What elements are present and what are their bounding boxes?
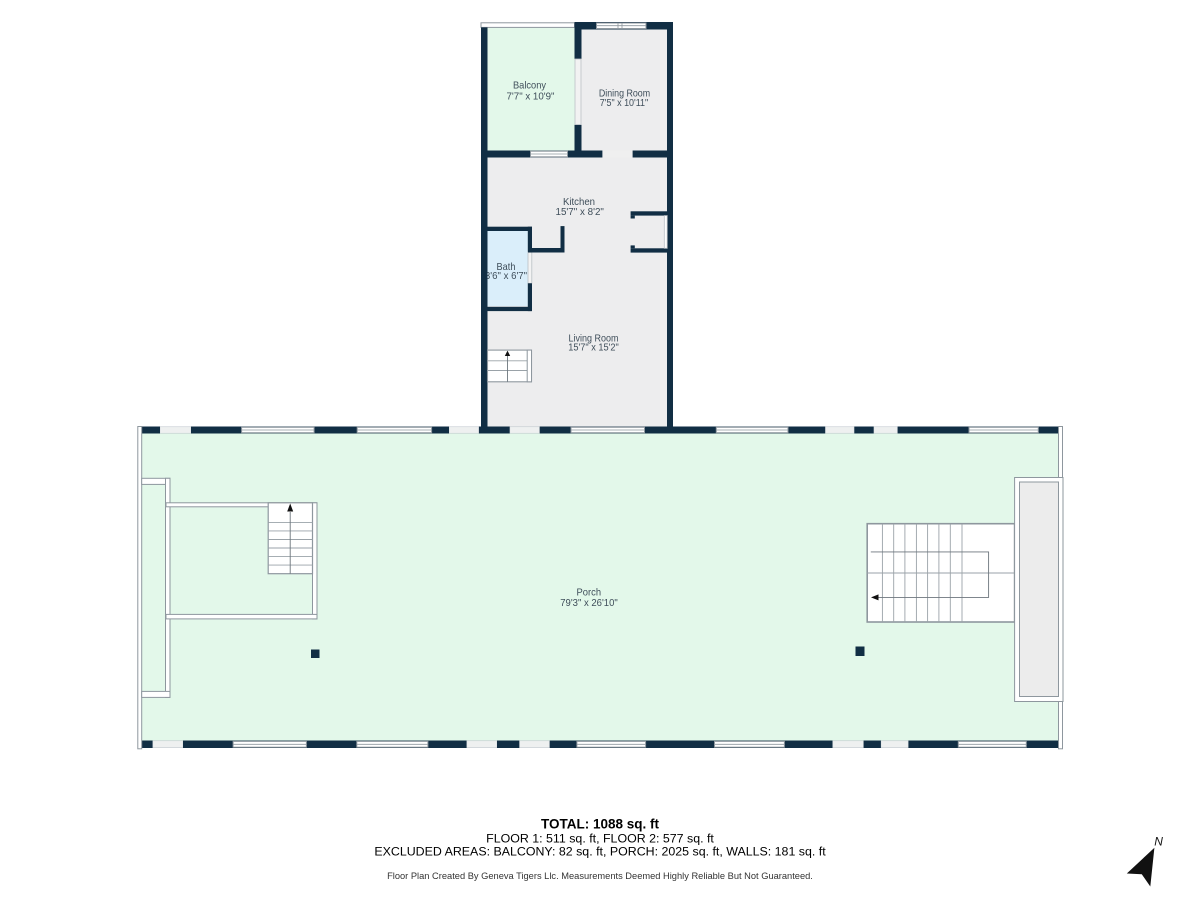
svg-text:Balcony: Balcony <box>513 79 547 91</box>
svg-text:EXCLUDED AREAS: BALCONY: 82 sq: EXCLUDED AREAS: BALCONY: 82 sq. ft, PORC… <box>374 844 826 858</box>
svg-text:Floor Plan Created By Geneva T: Floor Plan Created By Geneva Tigers Llc.… <box>387 871 813 881</box>
svg-text:15'7" x 8'2": 15'7" x 8'2" <box>556 207 605 218</box>
svg-text:79'3" x 26'10": 79'3" x 26'10" <box>560 598 618 609</box>
svg-text:Porch: Porch <box>577 587 602 599</box>
svg-text:7'7" x 10'9": 7'7" x 10'9" <box>507 92 556 103</box>
svg-text:TOTAL: 1088 sq. ft: TOTAL: 1088 sq. ft <box>541 817 660 832</box>
svg-text:3'6" x 6'7": 3'6" x 6'7" <box>485 271 528 282</box>
svg-text:N: N <box>1154 835 1163 849</box>
svg-text:15'7" x 15'2": 15'7" x 15'2" <box>568 342 619 353</box>
svg-text:7'5" x 10'11": 7'5" x 10'11" <box>600 98 649 109</box>
